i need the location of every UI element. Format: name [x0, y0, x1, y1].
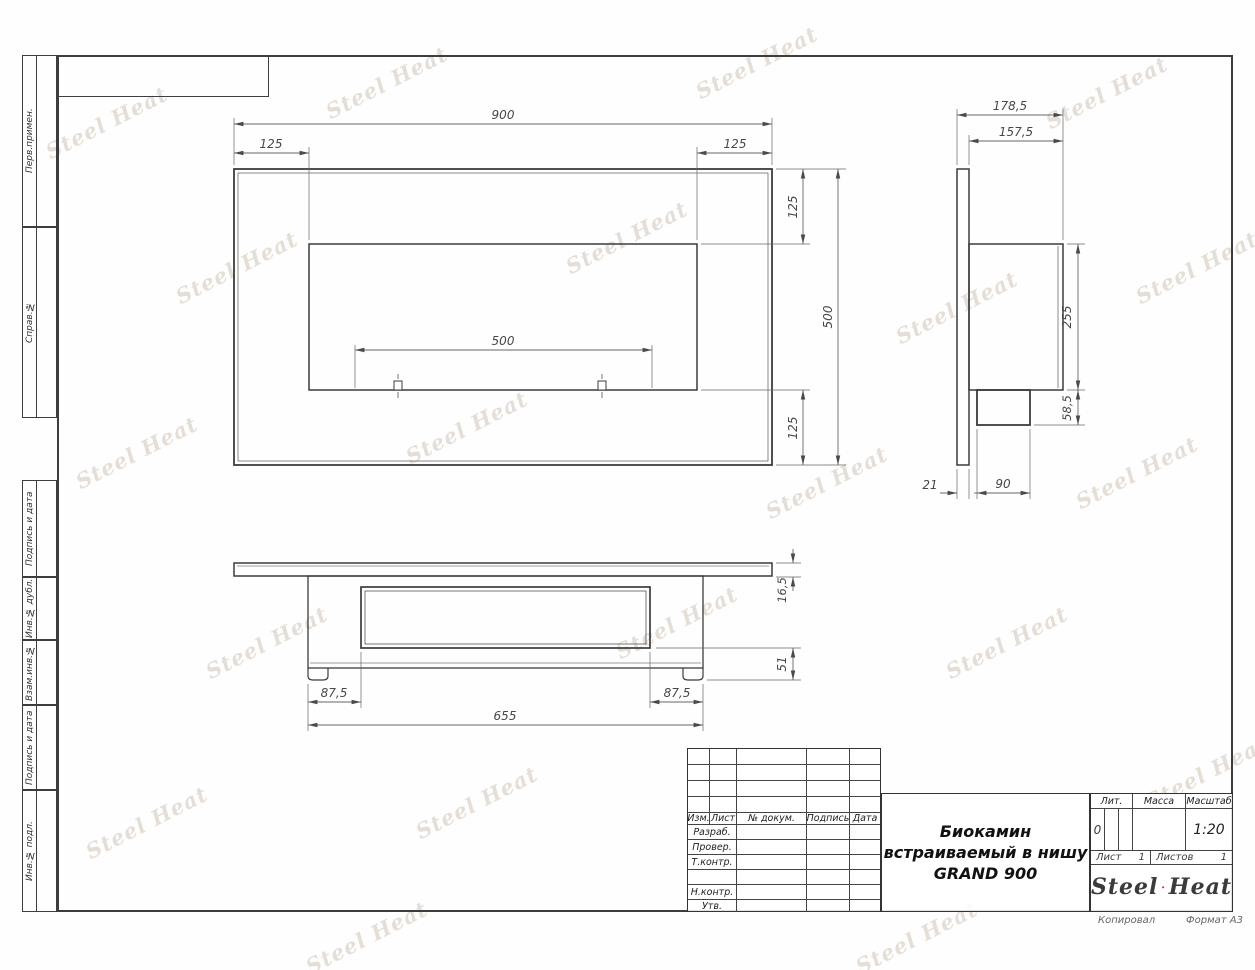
title-block-right: Лит. Масса Масштаб 0 1:20 Лист 1 Листов …	[1090, 793, 1233, 912]
dim-front-inset-top: 125	[786, 196, 800, 219]
dim-front-inset-bottom: 125	[786, 417, 800, 440]
lit-value-cell: 0	[1091, 809, 1105, 850]
cell	[850, 825, 880, 839]
list-label: Лист	[1096, 852, 1121, 863]
cell	[807, 885, 850, 899]
cell	[737, 900, 807, 912]
cell	[737, 765, 807, 780]
sig-label: Утв.	[688, 900, 737, 912]
lit-massa-masshtab-header: Лит. Масса Масштаб	[1091, 794, 1232, 809]
side-front-plate	[957, 169, 969, 465]
foot-right	[683, 668, 703, 680]
cell	[688, 749, 710, 764]
cell	[737, 840, 807, 854]
lit-cell-3	[1119, 809, 1133, 850]
masshtab-label: Масштаб	[1186, 794, 1232, 808]
bottom-opening-inner-rect	[365, 591, 646, 644]
revision-row	[688, 797, 880, 813]
title-block-document-name: Биокамин встраиваемый в нишу GRAND 900	[881, 793, 1090, 912]
cell	[688, 781, 710, 796]
massa-label: Масса	[1133, 794, 1186, 808]
lit-massa-masshtab-values: 0 1:20	[1091, 809, 1232, 851]
list-value: 1	[1139, 852, 1145, 863]
side-burner-rect	[977, 390, 1030, 425]
bottom-body-rect	[308, 576, 703, 668]
bottom-view	[234, 563, 772, 680]
logo-cell: Steel Heat	[1091, 865, 1232, 909]
doc-title-line1: Биокамин	[940, 821, 1031, 842]
revision-row	[688, 781, 880, 797]
revision-row	[688, 749, 880, 765]
cell	[850, 885, 880, 899]
dim-side-depth-total: 178,5	[993, 99, 1027, 113]
cell	[807, 840, 850, 854]
cell	[850, 870, 880, 884]
cell	[850, 855, 880, 869]
cell	[710, 749, 737, 764]
sig-label: Разраб.	[688, 825, 737, 839]
revision-row	[688, 765, 880, 781]
drawing-sheet: Steel Heat Steel Heat Steel Heat Steel H…	[0, 0, 1255, 970]
cell	[737, 797, 807, 812]
doc-title-line3: GRAND 900	[934, 863, 1037, 884]
format-label: Формат А3	[1186, 915, 1243, 926]
front-outer-rect	[234, 169, 772, 465]
cell	[807, 765, 850, 780]
sig-row-razrab: Разраб.	[688, 825, 880, 840]
burner-tab-left	[394, 381, 402, 390]
sheet-number-row: Лист 1 Листов 1	[1091, 851, 1232, 865]
bottom-flange-rect	[234, 563, 772, 576]
dim-bottom-body-width: 655	[494, 709, 517, 723]
cell	[737, 870, 807, 884]
doc-title-line2: встраиваемый в нишу	[884, 842, 1088, 863]
lit-cell-2	[1105, 809, 1119, 850]
cell	[807, 870, 850, 884]
col-podpis: Подпись	[807, 813, 850, 824]
sig-label: Т.контр.	[688, 855, 737, 869]
side-view	[957, 169, 1063, 465]
col-data: Дата	[850, 813, 880, 824]
front-outer-inner-line	[238, 173, 768, 461]
dim-front-height-total: 500	[821, 305, 835, 328]
dim-side-depth-body: 157,5	[999, 125, 1033, 139]
cell	[737, 749, 807, 764]
dim-bottom-inset-right: 87,5	[664, 686, 691, 700]
cell	[710, 765, 737, 780]
cell	[850, 797, 880, 812]
cell	[850, 781, 880, 796]
dim-bottom-inset-left: 87,5	[321, 686, 348, 700]
foot-left	[308, 668, 328, 680]
sig-row-nkontr: Н.контр.	[688, 885, 880, 900]
side-body-rect	[969, 244, 1063, 390]
sig-label	[688, 870, 737, 884]
dim-front-inset-right: 125	[724, 137, 747, 151]
title-block-revision-table: Изм. Лист № докум. Подпись Дата Разраб. …	[687, 748, 881, 912]
dim-side-opening-height: 255	[1060, 306, 1074, 329]
copied-label: Копировал	[1098, 915, 1155, 926]
dim-front-inset-left: 125	[260, 137, 283, 151]
col-dokum: № докум.	[737, 813, 807, 824]
listov-label: Листов	[1156, 852, 1193, 863]
masshtab-value-cell: 1:20	[1186, 809, 1232, 850]
dim-side-burner-height: 58,5	[1060, 395, 1074, 421]
sig-label: Н.контр.	[688, 885, 737, 899]
cell	[807, 781, 850, 796]
bottom-opening-rect	[361, 587, 650, 648]
cell	[688, 765, 710, 780]
cell	[807, 825, 850, 839]
dim-bottom-flange-thickness: 16,5	[775, 577, 789, 603]
cell	[807, 900, 850, 912]
dim-front-opening-width: 500	[492, 334, 515, 348]
cell	[737, 781, 807, 796]
steel-heat-logo: Steel Heat	[1091, 865, 1232, 909]
cell	[850, 749, 880, 764]
cell	[807, 855, 850, 869]
listov-value: 1	[1221, 852, 1227, 863]
cell	[850, 765, 880, 780]
sig-row-utv: Утв.	[688, 900, 880, 912]
cell	[737, 825, 807, 839]
front-opening-rect	[309, 244, 697, 390]
cell	[850, 900, 880, 912]
dim-side-burner-depth: 90	[995, 477, 1011, 491]
cell	[710, 797, 737, 812]
front-view	[234, 169, 772, 465]
cell	[807, 797, 850, 812]
lit-label: Лит.	[1091, 794, 1133, 808]
dim-front-width-total: 900	[492, 108, 515, 122]
front-view-dimensions	[234, 118, 846, 465]
revision-header-row: Изм. Лист № докум. Подпись Дата	[688, 813, 880, 825]
logo-text-steel: Steel	[1091, 874, 1158, 900]
sig-row-tkontr: Т.контр.	[688, 855, 880, 870]
dim-side-frame-thickness: 21	[922, 478, 937, 492]
cell	[737, 885, 807, 899]
massa-value-cell	[1133, 809, 1186, 850]
logo-text-heat: Heat	[1169, 874, 1232, 900]
cell	[737, 855, 807, 869]
cell	[710, 781, 737, 796]
cell	[807, 749, 850, 764]
cell	[850, 840, 880, 854]
dim-bottom-burner-drop: 51	[775, 656, 789, 671]
sig-row-blank	[688, 870, 880, 885]
sig-row-prover: Провер.	[688, 840, 880, 855]
flame-icon	[1162, 873, 1164, 901]
col-list: Лист	[710, 813, 737, 824]
sig-label: Провер.	[688, 840, 737, 854]
col-izm: Изм.	[688, 813, 710, 824]
burner-tab-right	[598, 381, 606, 390]
cell	[688, 797, 710, 812]
